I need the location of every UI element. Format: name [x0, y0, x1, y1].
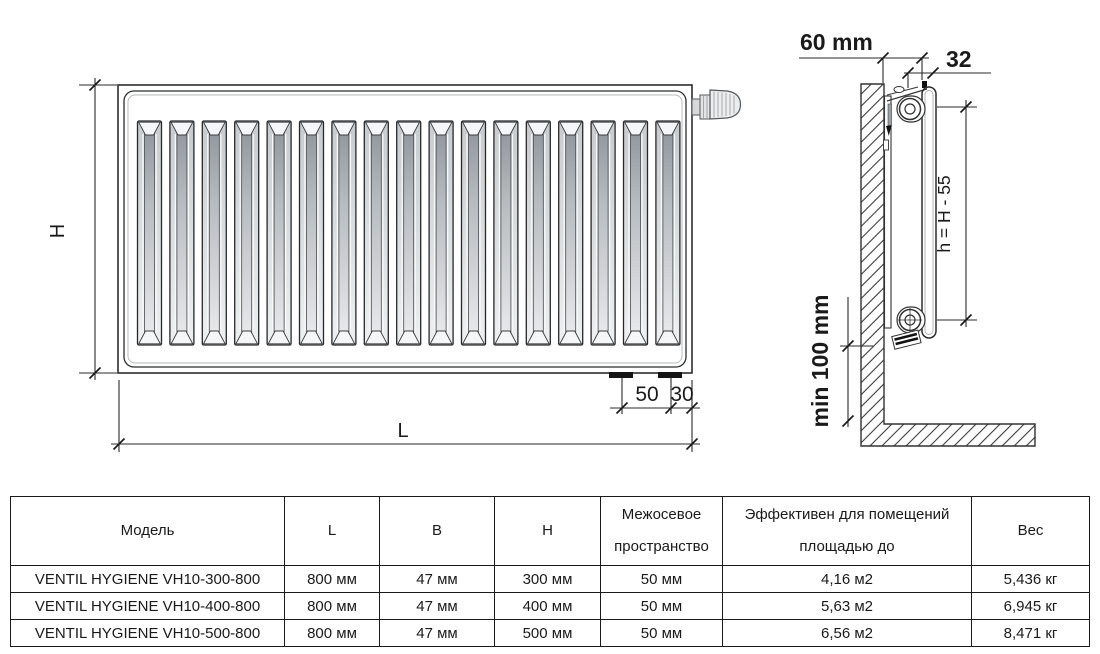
table-row: VENTIL HYGIENE VH10-500-800 800 мм 47 мм… [11, 620, 1090, 647]
connection-stub-right [658, 372, 682, 378]
dim-label-32: 32 [946, 46, 972, 72]
radiator-groove [526, 121, 550, 345]
cell-depth: 47 мм [380, 620, 495, 647]
cell-height: 300 мм [495, 566, 601, 593]
rail-notch [884, 140, 889, 150]
dimension-H: H [47, 78, 117, 380]
radiator-groove [138, 121, 162, 345]
radiator-groove [300, 121, 324, 345]
radiator-groove [559, 121, 583, 345]
front-view: H L 50 30 [47, 78, 741, 452]
cell-weight: 6,945 кг [972, 593, 1090, 620]
radiator-groove [462, 121, 486, 345]
cell-height: 500 мм [495, 620, 601, 647]
cell-axial-spacing: 50 мм [601, 620, 723, 647]
panel-profile-inner [925, 91, 933, 335]
table-row: VENTIL HYGIENE VH10-400-800 800 мм 47 мм… [11, 593, 1090, 620]
connection-stub-left [609, 372, 633, 378]
cell-depth: 47 мм [380, 566, 495, 593]
col-header-model: Модель [11, 497, 285, 566]
dim-label-L: L [397, 420, 408, 442]
cell-length: 800 мм [285, 620, 380, 647]
bottom-hub [897, 307, 925, 333]
radiator-groove [429, 121, 453, 345]
cell-length: 800 мм [285, 593, 380, 620]
radiator-groove [202, 121, 226, 345]
cell-effective-area: 4,16 м2 [723, 566, 972, 593]
dim-label-30: 30 [670, 383, 693, 406]
thermostatic-valve [692, 90, 741, 119]
cell-depth: 47 мм [380, 593, 495, 620]
dim-label-60mm: 60 mm [800, 29, 873, 55]
radiator-groove [332, 121, 356, 345]
cell-effective-area: 6,56 м2 [723, 620, 972, 647]
cell-axial-spacing: 50 мм [601, 593, 723, 620]
table-row: VENTIL HYGIENE VH10-300-800 800 мм 47 мм… [11, 566, 1090, 593]
col-header-weight: Вес [972, 497, 1090, 566]
cell-model: VENTIL HYGIENE VH10-500-800 [11, 620, 285, 647]
cell-model: VENTIL HYGIENE VH10-300-800 [11, 566, 285, 593]
cell-length: 800 мм [285, 566, 380, 593]
dim-label-H: H [47, 224, 69, 238]
cell-height: 400 мм [495, 593, 601, 620]
radiator-groove [624, 121, 648, 345]
dim-label-50: 50 [635, 383, 658, 406]
col-header-B: B [380, 497, 495, 566]
spec-table: Модель L B H Межосевое пространство Эффе… [10, 496, 1090, 647]
dimension-60mm: 60 mm [799, 29, 929, 83]
cell-axial-spacing: 50 мм [601, 566, 723, 593]
cell-weight: 8,471 кг [972, 620, 1090, 647]
dimension-L: L [111, 380, 700, 452]
radiator-groove [267, 121, 291, 345]
valve-knob [710, 90, 741, 119]
cell-weight: 5,436 кг [972, 566, 1090, 593]
cell-model: VENTIL HYGIENE VH10-400-800 [11, 593, 285, 620]
cell-effective-area: 5,63 м2 [723, 593, 972, 620]
bracket-slot [888, 104, 892, 126]
col-header-axial-spacing: Межосевое пространство [601, 497, 723, 566]
col-header-effective-area: Эффективен для помещений площадью до [723, 497, 972, 566]
radiator-groove [364, 121, 388, 345]
radiator-spec-sheet: H L 50 30 [0, 0, 1100, 654]
radiator-groove [235, 121, 259, 345]
dimension-32: 32 [903, 46, 992, 88]
dimension-50-30: 50 30 [610, 378, 700, 414]
radiator-groove [656, 121, 680, 345]
dim-label-min100: min 100 mm [807, 295, 833, 428]
col-header-L: L [285, 497, 380, 566]
spec-table-header-row: Модель L B H Межосевое пространство Эффе… [11, 497, 1090, 566]
side-view: 60 mm 32 h = H - 55 [799, 29, 1035, 446]
dimension-h: h = H - 55 [934, 100, 977, 327]
bottom-fitting [892, 330, 921, 349]
radiator-groove [591, 121, 615, 345]
radiator-groove [397, 121, 421, 345]
radiator-groove [494, 121, 518, 345]
technical-drawing: H L 50 30 [0, 0, 1100, 492]
col-header-H: H [495, 497, 601, 566]
dim-label-h: h = H - 55 [934, 175, 954, 252]
radiator-groove [170, 121, 194, 345]
top-hub [897, 96, 925, 122]
radiator-grooves [138, 121, 680, 345]
